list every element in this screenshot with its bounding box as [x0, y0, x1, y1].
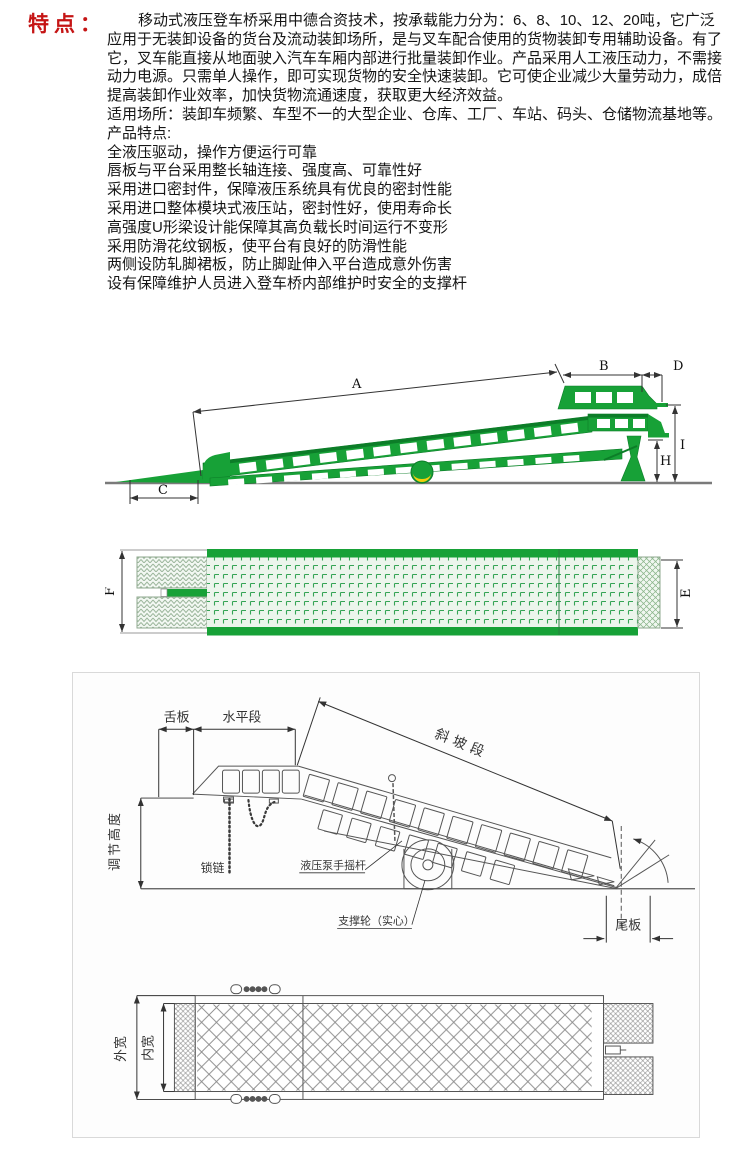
- label-pump-lever: 液压泵手摇杆: [300, 858, 366, 872]
- tail-plate-fold: [615, 826, 669, 929]
- dim-label-h: H: [660, 454, 671, 469]
- pump-lever-rod: [388, 775, 395, 843]
- label-tail-plate: 尾板: [615, 918, 641, 933]
- dim-label-a: A: [351, 377, 362, 392]
- lock-chain: [224, 797, 275, 875]
- feature-line: 它，叉车能直接从地面驶入汽车车厢内部进行批量装卸作业。产品采用人工液压动力，不需…: [107, 50, 750, 69]
- dim-label-e: E: [679, 589, 694, 599]
- technical-drawing-panel: 舌板 水平段 斜坡段 调节高度 锁链 液压泵手摇杆 支撑轮（实心） 尾板: [72, 672, 700, 1138]
- feature-line: 采用进口密封件，保障液压系统具有优良的密封性能: [107, 181, 750, 200]
- lip-section: [558, 386, 668, 409]
- label-adjustable-height: 调节高度: [107, 811, 122, 871]
- dim-label-c: C: [158, 483, 168, 498]
- platform-deck-top: [207, 549, 660, 636]
- diagram-line-side-view: 舌板 水平段 斜坡段 调节高度 锁链 液压泵手摇杆 支撑轮（实心） 尾板: [73, 673, 699, 963]
- support-wheel: [402, 840, 454, 890]
- feature-line: 采用防滑花纹钢板，使平台有良好的防滑性能: [107, 238, 750, 257]
- label-support-wheel: 支撑轮（实心）: [338, 914, 415, 928]
- ramp-body: [116, 414, 669, 486]
- label-lock-chain: 锁链: [201, 860, 225, 875]
- label-tongue-plate: 舌板: [164, 709, 190, 724]
- lip-plates-top: [120, 550, 207, 633]
- diagram-line-top-view: 外宽 内宽: [73, 963, 699, 1137]
- chain-top: [231, 985, 280, 994]
- dim-label-i: I: [680, 438, 685, 453]
- diagram-ramp-top-view: F E: [105, 545, 695, 641]
- feature-line: 采用进口整体模块式液压站，密封性好，使用寿命长: [107, 200, 750, 219]
- product-description-page: 特点： 移动式液压登车桥采用中德合资技术，按承载能力分为：6、8、10、12、2…: [0, 0, 750, 1156]
- label-slope-section: 斜坡段: [433, 725, 492, 761]
- feature-line: 唇板与平台采用整长轴连接、强度高、可靠性好: [107, 162, 750, 181]
- platform-outline: [193, 766, 302, 803]
- tail-plates: [604, 1004, 653, 1095]
- feature-line: 全液压驱动，操作方便运行可靠: [107, 144, 750, 163]
- label-inner-width: 内宽: [141, 1035, 156, 1061]
- feature-line: 提高装卸作业效率，加快货物流通速度，获取更大经济效益。: [107, 87, 750, 106]
- feature-line: 高强度U形梁设计能保障其高负载长时间运行不变形: [107, 219, 750, 238]
- feature-line: 应用于无装卸设备的货台及流动装卸场所，是与叉车配合使用的货物装卸专用辅助设备。有…: [107, 31, 750, 50]
- deck-outline: [174, 996, 603, 1100]
- features-heading: 特点：: [28, 8, 106, 38]
- dim-label-f: F: [105, 587, 118, 596]
- feature-line: 适用场所：装卸车频繁、车型不一的大型企业、仓库、工厂、车站、码头、仓储物流基地等…: [107, 106, 750, 125]
- feature-line: 设有保障维护人员进入登车桥内部维护时安全的支撑杆: [107, 275, 750, 294]
- label-horizontal-section: 水平段: [223, 709, 262, 724]
- feature-line: 产品特点:: [107, 125, 750, 144]
- dim-label-d: D: [673, 359, 683, 374]
- wheel: [411, 461, 433, 483]
- diagram-ramp-side-view: A B D I H C: [100, 352, 750, 514]
- dimension-lines: [141, 697, 673, 942]
- feature-line: 动力电源。只需单人操作，即可实现货物的安全快速装卸。它可使企业减少大量劳动力，成…: [107, 68, 750, 87]
- feature-line: 两侧设防轧脚裙板，防止脚趾伸入平台造成意外伤害: [107, 256, 750, 275]
- feature-line: 移动式液压登车桥采用中德合资技术，按承载能力分为：6、8、10、12、20吨，它…: [107, 12, 750, 31]
- feature-lines: 移动式液压登车桥采用中德合资技术，按承载能力分为：6、8、10、12、20吨，它…: [107, 12, 750, 294]
- dim-label-b: B: [599, 359, 609, 374]
- label-outer-width: 外宽: [113, 1036, 128, 1062]
